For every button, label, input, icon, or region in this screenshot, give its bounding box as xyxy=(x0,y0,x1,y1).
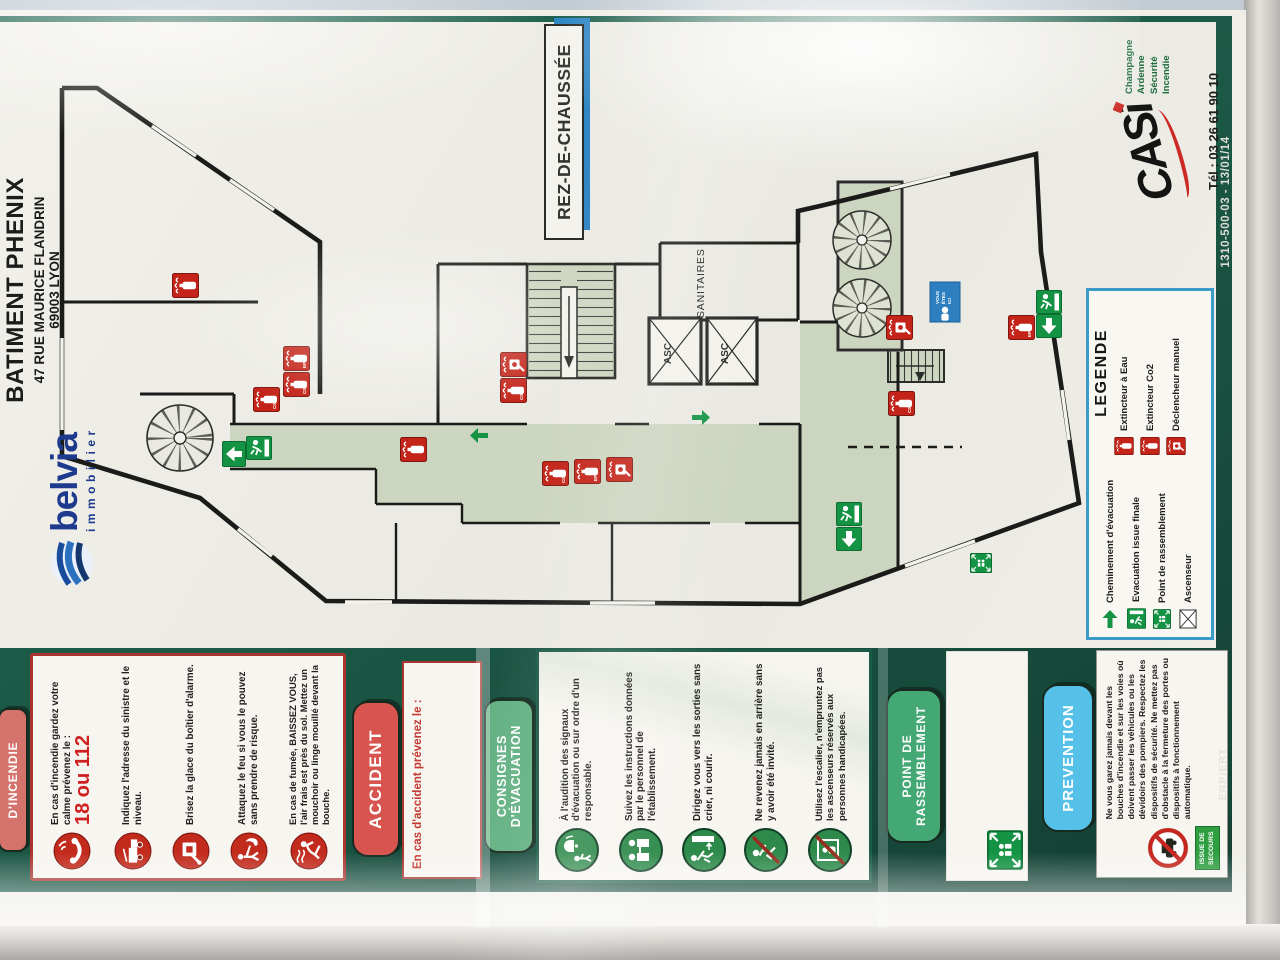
belvia-tagline: immobilier xyxy=(84,426,98,532)
phone-icon xyxy=(53,832,91,870)
walk-to-exit-icon xyxy=(682,828,726,872)
prevention-pill: PREVENTION xyxy=(1044,686,1092,830)
serial-number: 1310-500-03 - 13/01/14 xyxy=(1220,136,1232,267)
consignes-item-1: À l'audition des signaux d'évacuation ou… xyxy=(545,660,609,872)
legend-box: Cheminement d'évacuation Evacuation issu… xyxy=(1086,288,1214,640)
building-title-block: BATIMENT PHENIX 47 RUE MAURICE FLANDRIN … xyxy=(2,128,68,452)
assembly-panel xyxy=(946,651,1028,881)
manual-call-point-icon xyxy=(1166,437,1186,455)
fire-truck-icon xyxy=(114,832,152,870)
prevention-panel: ISSUE DE SECOURS Ne vous garez jamais de… xyxy=(1096,650,1228,878)
extinguisher-water-icon xyxy=(1114,437,1134,455)
assembly-point-icon xyxy=(1153,609,1171,629)
incendie-pill: D'INCENDIE xyxy=(0,710,26,850)
belvia-name: belvia xyxy=(46,426,83,532)
consignes-panel: À l'audition des signaux d'évacuation ou… xyxy=(536,649,872,883)
legend-item-ext-co2: Extincteur Co2 xyxy=(1137,291,1163,455)
belvia-logo: belvia immobilier xyxy=(20,424,124,586)
issue-de-secours-badge: ISSUE DE SECOURS xyxy=(1195,826,1220,870)
staff-instructions-icon xyxy=(619,828,663,872)
consignes-item-4: Ne revenez jamais en arrière sans y avoi… xyxy=(735,660,797,872)
legend-red-column: LEGENDE Extincteur à Eau Extincteur Co2 … xyxy=(1093,291,1189,455)
legend-item-assembly: Point de rassemblement xyxy=(1149,461,1175,629)
alarm-box-icon xyxy=(172,832,210,870)
emergency-numbers: 18 ou 112 xyxy=(73,664,94,825)
building-address: 47 RUE MAURICE FLANDRIN xyxy=(32,128,47,452)
no-parking-icon xyxy=(1147,827,1189,869)
assembly-point-icon xyxy=(987,830,1023,870)
accident-pill: ACCIDENT xyxy=(354,703,398,855)
incendie-item-3: Brisez la glace du boîtier d'alarme. xyxy=(162,664,220,870)
consignes-item-2: Suivez les instructions données par le p… xyxy=(609,660,673,872)
accident-panel: En cas d'accident prévenez le : xyxy=(402,661,482,879)
fight-fire-icon xyxy=(230,832,268,870)
no-return-icon xyxy=(744,828,788,872)
assembly-pill: POINT DE RASSEMBLEMENT xyxy=(888,691,940,841)
evacuation-plan-photo: ASC ASC SANITAIRES EP C02 C02 xyxy=(0,0,1280,960)
legend-title: LEGENDE xyxy=(1093,291,1111,455)
consignes-item-3: Dirigez vous vers les sorties sans crier… xyxy=(673,660,735,872)
serial-block: 1310-500-03 - 13/01/14 xyxy=(1212,52,1240,352)
incendie-item-4: Attaquez le feu si vous le pouvez sans p… xyxy=(220,664,278,870)
incendie-item-1: En cas d'incendie gardez votre calme pré… xyxy=(40,664,104,870)
casi-region: Champagne Ardenne Sécurité Incendie xyxy=(1124,16,1173,94)
erp-ert-block: ERP/ERT xyxy=(1210,742,1236,806)
legend-item-route: Cheminement d'évacuation xyxy=(1097,461,1123,629)
floor-plan-background xyxy=(0,22,1216,648)
belvia-globe-icon xyxy=(49,540,95,586)
legend-item-ext-water: Extincteur à Eau xyxy=(1111,291,1137,455)
accident-note: En cas d'accident prévenez le : xyxy=(412,671,424,869)
frame-bottom xyxy=(0,924,1280,960)
route-arrow-icon xyxy=(1102,609,1118,629)
legend-item-call-point: Déclencheur manuel xyxy=(1163,291,1189,455)
legend-green-column: Cheminement d'évacuation Evacuation issu… xyxy=(1097,461,1201,629)
incendie-item-2: Indiquez l'adresse du sinistre et le niv… xyxy=(104,664,162,870)
building-city: 69003 LYON xyxy=(47,128,62,452)
incendie-item-5: En cas de fumée, BAISSEZ VOUS, l'air fra… xyxy=(278,664,340,870)
legend-item-final-exit: Evacuation issue finale xyxy=(1123,461,1149,629)
consignes-pill: CONSIGNES D'ÉVACUATION xyxy=(486,701,532,851)
building-name: BATIMENT PHENIX xyxy=(2,128,30,452)
floor-label-block: REZ-DE-CHAUSSÉE xyxy=(542,16,592,240)
alarm-signal-icon xyxy=(555,828,599,872)
legend-item-elevator: Ascenseur xyxy=(1175,461,1201,629)
consignes-item-5: Utilisez l'escalier, n'empruntez pas les… xyxy=(797,660,863,872)
prevention-text: Ne vous garez jamais devant les bouches … xyxy=(1104,658,1220,819)
erp-ert-code: ERP/ERT xyxy=(1217,748,1229,801)
crouch-smoke-icon xyxy=(290,832,328,870)
final-exit-icon xyxy=(1127,608,1146,629)
extinguisher-co2-icon xyxy=(1140,437,1160,455)
elevator-icon xyxy=(1179,609,1197,629)
incendie-panel: En cas d'incendie gardez votre calme pré… xyxy=(30,653,346,881)
floor-label: REZ-DE-CHAUSSÉE xyxy=(544,24,584,240)
no-elevator-icon xyxy=(808,828,852,872)
frame-right xyxy=(1244,0,1280,960)
